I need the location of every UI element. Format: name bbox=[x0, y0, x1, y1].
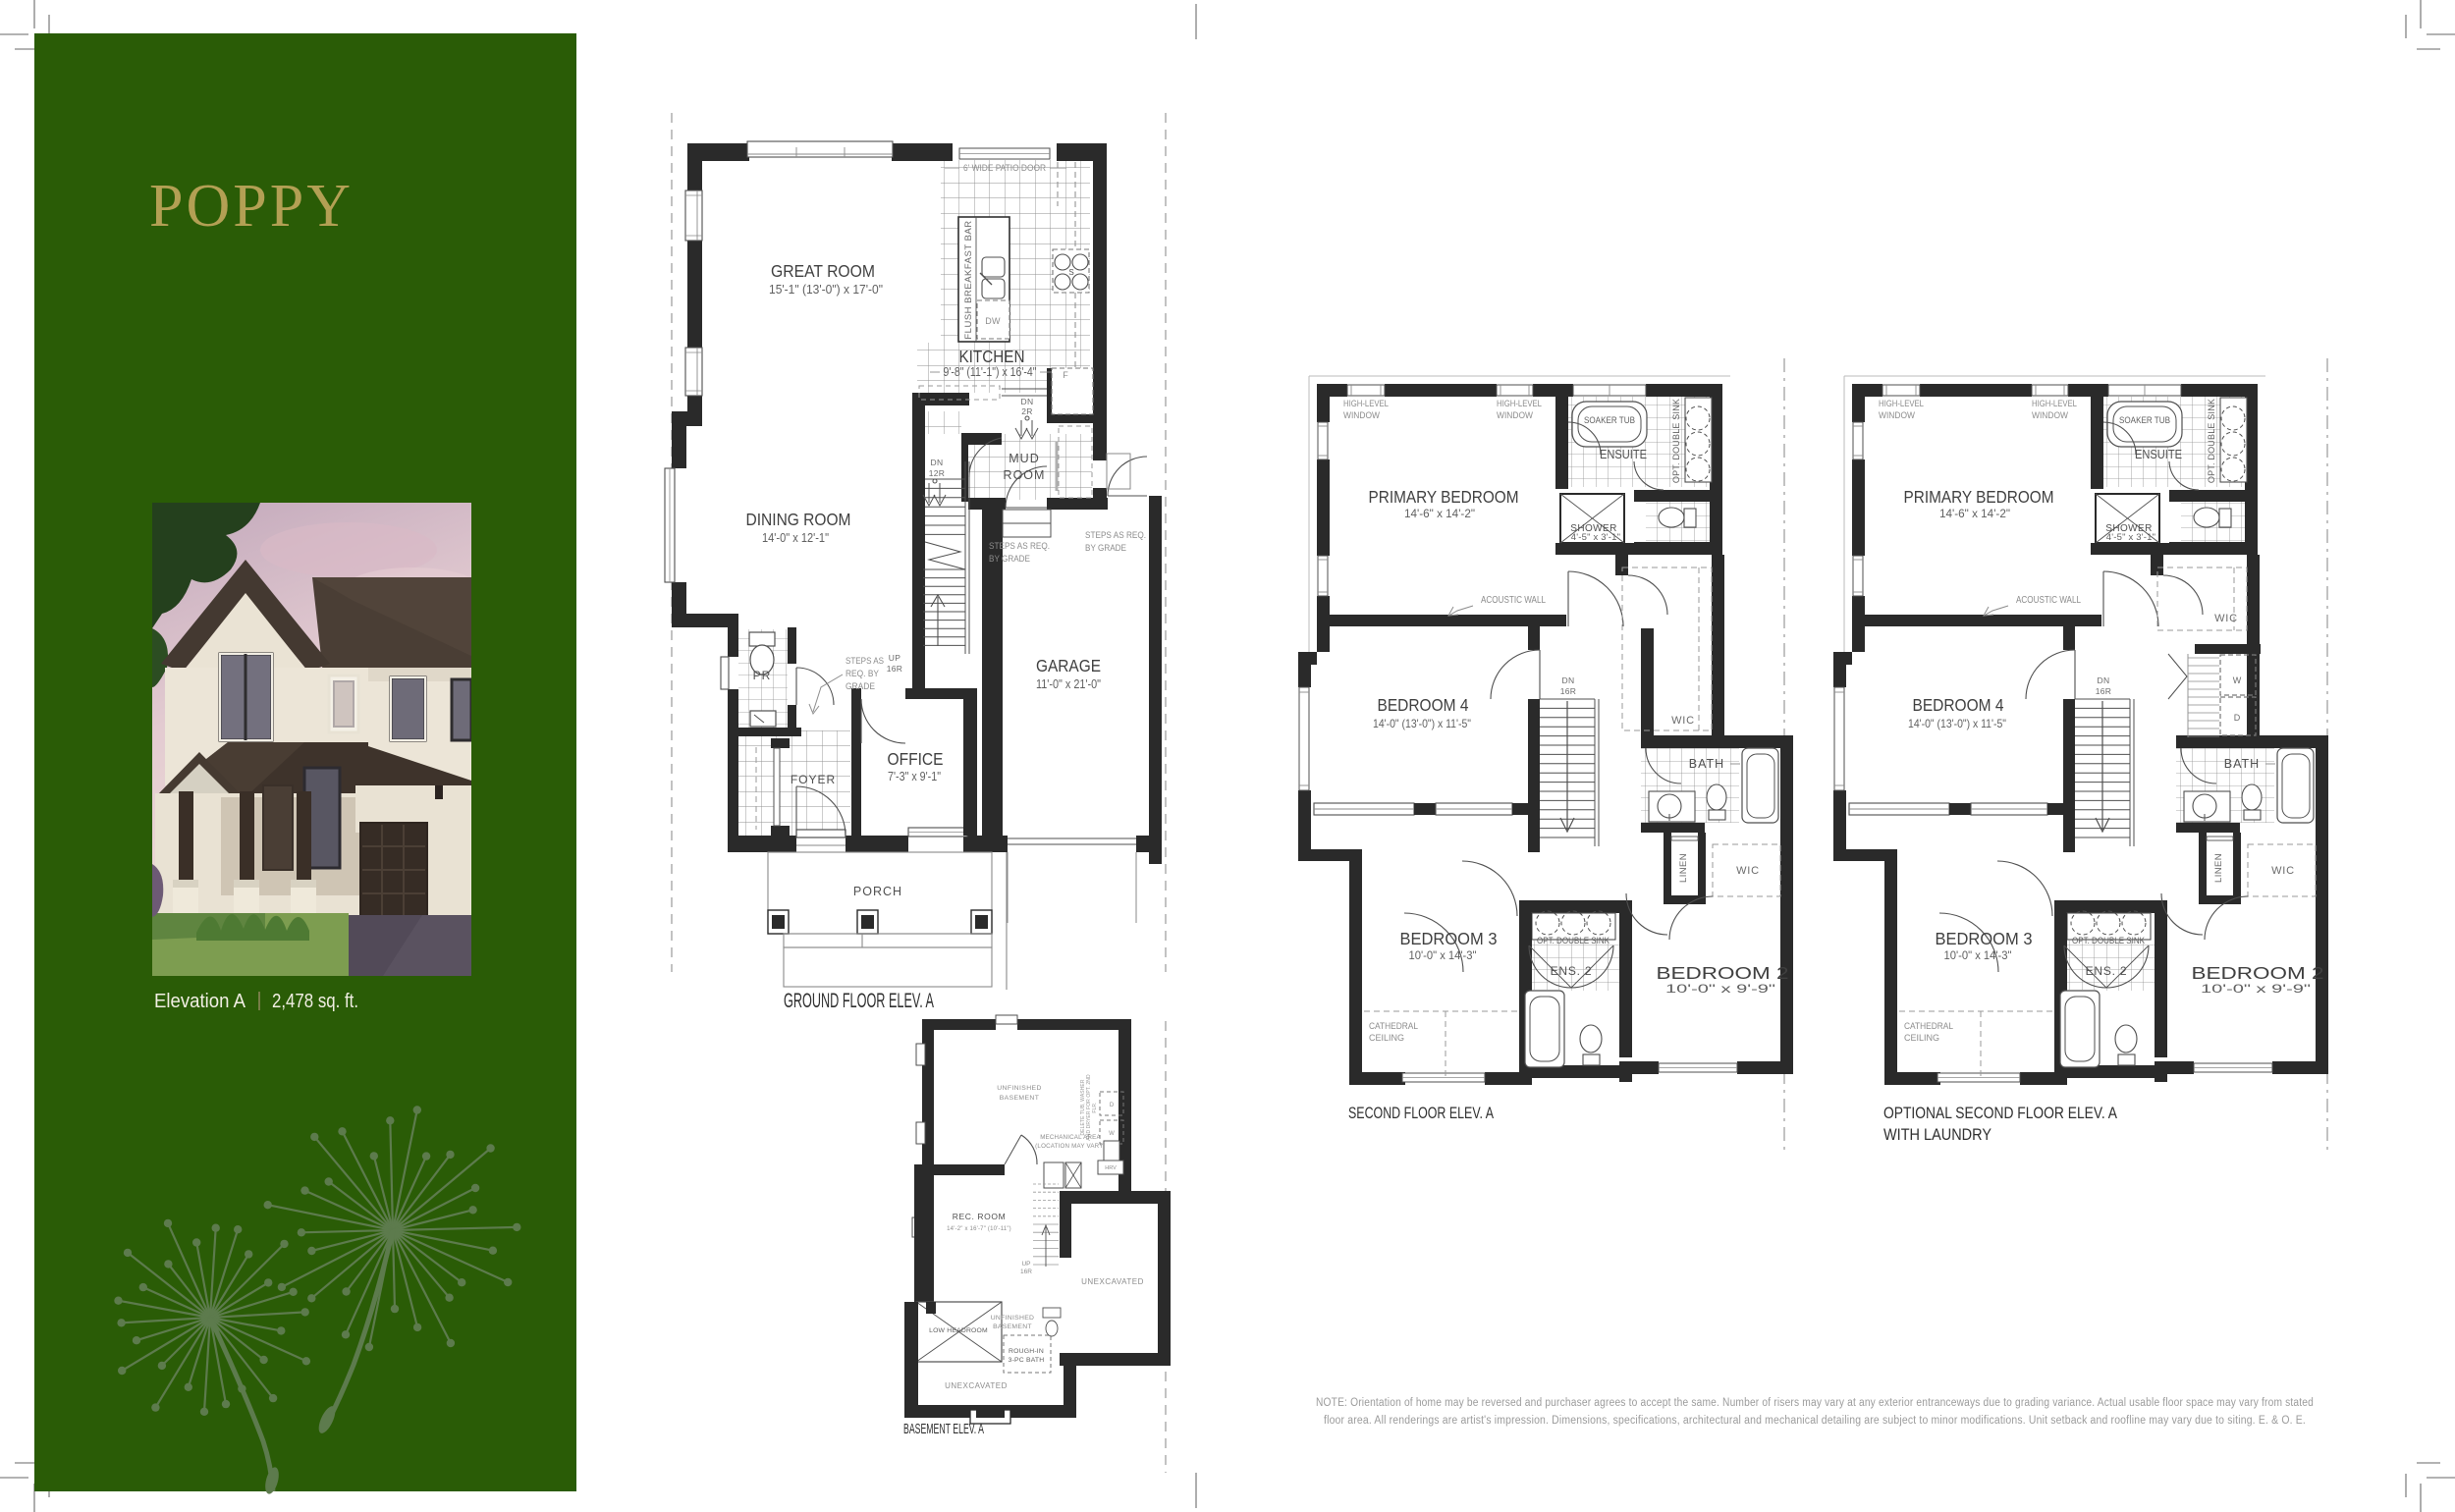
svg-text:BEDROOM 3: BEDROOM 3 bbox=[1400, 929, 1498, 948]
svg-text:MECHANICAL AREA: MECHANICAL AREA bbox=[1040, 1134, 1101, 1141]
svg-text:ACOUSTIC WALL: ACOUSTIC WALL bbox=[2016, 595, 2081, 606]
svg-text:16R: 16R bbox=[1020, 1269, 1032, 1275]
svg-text:HIGH-LEVEL: HIGH-LEVEL bbox=[1497, 399, 1542, 408]
svg-text:WINDOW: WINDOW bbox=[2032, 410, 2068, 420]
svg-text:UNFINISHED: UNFINISHED bbox=[997, 1085, 1042, 1092]
svg-text:ENS. 2: ENS. 2 bbox=[1551, 964, 1593, 978]
svg-text:10'-0" x 9'-9": 10'-0" x 9'-9" bbox=[2201, 982, 2311, 996]
svg-text:F: F bbox=[1063, 370, 1068, 380]
svg-text:ROUGH-IN: ROUGH-IN bbox=[1009, 1348, 1044, 1355]
svg-text:16R: 16R bbox=[1560, 686, 1577, 696]
svg-text:UP: UP bbox=[1021, 1261, 1030, 1268]
svg-text:STEPS AS REQ.: STEPS AS REQ. bbox=[1085, 530, 1146, 541]
svg-text:BEDROOM 2: BEDROOM 2 bbox=[2192, 963, 2324, 983]
svg-text:CEILING: CEILING bbox=[1904, 1033, 1939, 1044]
svg-text:UNEXCAVATED: UNEXCAVATED bbox=[1081, 1277, 1144, 1286]
svg-text:2,478 sq. ft.: 2,478 sq. ft. bbox=[272, 990, 358, 1012]
svg-text:LINEN: LINEN bbox=[2213, 853, 2224, 883]
svg-text:SOAKER TUB: SOAKER TUB bbox=[1584, 415, 1635, 426]
svg-text:BEDROOM 3: BEDROOM 3 bbox=[1936, 929, 2033, 948]
svg-text:FLR.: FLR. bbox=[1092, 1102, 1098, 1112]
svg-text:7'-3" x 9'-1": 7'-3" x 9'-1" bbox=[888, 770, 941, 783]
svg-text:UNFINISHED: UNFINISHED bbox=[991, 1315, 1035, 1322]
svg-text:BEDROOM 4: BEDROOM 4 bbox=[1378, 695, 1469, 715]
svg-text:WINDOW: WINDOW bbox=[1879, 410, 1915, 420]
svg-text:14'-0" (13'-0") x 11'-5": 14'-0" (13'-0") x 11'-5" bbox=[1908, 717, 2006, 730]
svg-text:ENSUITE: ENSUITE bbox=[1600, 447, 1647, 461]
svg-text:6' WIDE PATIO DOOR: 6' WIDE PATIO DOOR bbox=[963, 163, 1046, 173]
svg-text:PR: PR bbox=[753, 669, 772, 682]
svg-text:CATHEDRAL: CATHEDRAL bbox=[1369, 1021, 1418, 1032]
svg-text:LINEN: LINEN bbox=[1678, 853, 1689, 883]
svg-text:14'-6" x 14'-2": 14'-6" x 14'-2" bbox=[1939, 507, 2010, 520]
svg-text:GRADE: GRADE bbox=[846, 681, 875, 692]
svg-text:12R: 12R bbox=[929, 468, 946, 478]
svg-text:CATHEDRAL: CATHEDRAL bbox=[1904, 1021, 1953, 1032]
svg-text:Elevation A: Elevation A bbox=[154, 990, 245, 1012]
svg-text:UP: UP bbox=[889, 653, 900, 663]
svg-text:BEDROOM 4: BEDROOM 4 bbox=[1913, 695, 2004, 715]
svg-text:W: W bbox=[2233, 675, 2242, 685]
svg-text:OPTIONAL SECOND FLOOR ELEV. A: OPTIONAL SECOND FLOOR ELEV. A bbox=[1883, 1105, 2117, 1122]
svg-text:11'-0" x 21'-0": 11'-0" x 21'-0" bbox=[1036, 677, 1101, 691]
svg-text:HIGH-LEVEL: HIGH-LEVEL bbox=[1343, 399, 1389, 408]
svg-text:PRIMARY BEDROOM: PRIMARY BEDROOM bbox=[1369, 487, 1519, 507]
svg-text:D: D bbox=[2234, 713, 2241, 723]
svg-text:BASEMENT: BASEMENT bbox=[993, 1323, 1032, 1330]
svg-text:10'-0" x 9'-9": 10'-0" x 9'-9" bbox=[1665, 982, 1775, 996]
svg-text:S: S bbox=[1068, 268, 1073, 277]
svg-text:GROUND FLOOR ELEV. A: GROUND FLOOR ELEV. A bbox=[784, 990, 934, 1012]
svg-text:HIGH-LEVEL: HIGH-LEVEL bbox=[1879, 399, 1924, 408]
svg-text:SOAKER TUB: SOAKER TUB bbox=[2119, 415, 2170, 426]
svg-text:10'-0" x 14'-3": 10'-0" x 14'-3" bbox=[1409, 948, 1477, 962]
svg-text:WIC: WIC bbox=[2271, 865, 2295, 877]
svg-text:MUD: MUD bbox=[1009, 452, 1039, 465]
svg-text:DINING ROOM: DINING ROOM bbox=[746, 510, 851, 529]
svg-text:BATH: BATH bbox=[2224, 757, 2260, 771]
svg-text:ENSUITE: ENSUITE bbox=[2135, 447, 2182, 461]
svg-text:GARAGE: GARAGE bbox=[1036, 656, 1101, 675]
svg-text:D: D bbox=[1110, 1103, 1115, 1108]
svg-text:14'-6" x 14'-2": 14'-6" x 14'-2" bbox=[1404, 507, 1475, 520]
svg-text:UNEXCAVATED: UNEXCAVATED bbox=[945, 1381, 1008, 1390]
svg-text:BATH: BATH bbox=[1689, 757, 1724, 771]
svg-text:POPPY: POPPY bbox=[149, 173, 354, 240]
svg-text:WITH LAUNDRY: WITH LAUNDRY bbox=[1883, 1126, 1991, 1144]
svg-text:PORCH: PORCH bbox=[853, 885, 902, 898]
svg-text:(LOCATION MAY VARY): (LOCATION MAY VARY) bbox=[1035, 1143, 1106, 1150]
svg-text:BY GRADE: BY GRADE bbox=[1085, 543, 1126, 554]
svg-text:NOTE: Orientation of home may: NOTE: Orientation of home may be reverse… bbox=[1316, 1397, 2314, 1409]
svg-text:GREAT ROOM: GREAT ROOM bbox=[771, 261, 875, 281]
svg-text:WIC: WIC bbox=[1736, 865, 1760, 877]
svg-text:STEPS AS REQ.: STEPS AS REQ. bbox=[989, 541, 1050, 552]
svg-text:HRV: HRV bbox=[1105, 1165, 1117, 1171]
svg-text:WIC: WIC bbox=[2214, 613, 2238, 624]
svg-text:14'-2" x 16'-7" (10'-11"): 14'-2" x 16'-7" (10'-11") bbox=[947, 1226, 1011, 1232]
svg-text:4'-5" x 3'-1": 4'-5" x 3'-1" bbox=[1571, 532, 1620, 543]
svg-text:REC. ROOM: REC. ROOM bbox=[953, 1212, 1007, 1221]
svg-text:KITCHEN: KITCHEN bbox=[959, 347, 1025, 366]
svg-text:BEDROOM 2: BEDROOM 2 bbox=[1657, 963, 1789, 983]
svg-text:15'-1" (13'-0") x 17'-0": 15'-1" (13'-0") x 17'-0" bbox=[769, 283, 883, 297]
svg-text:WINDOW: WINDOW bbox=[1343, 410, 1380, 420]
svg-text:ACOUSTIC WALL: ACOUSTIC WALL bbox=[1481, 595, 1546, 606]
svg-text:FOYER: FOYER bbox=[791, 773, 836, 786]
svg-text:16R: 16R bbox=[2096, 686, 2112, 696]
svg-text:OFFICE: OFFICE bbox=[888, 749, 944, 769]
svg-text:DN: DN bbox=[2098, 675, 2110, 685]
svg-text:4'-5" x 3'-1": 4'-5" x 3'-1" bbox=[2106, 532, 2155, 543]
svg-text:10'-0" x 14'-3": 10'-0" x 14'-3" bbox=[1944, 948, 2012, 962]
svg-text:floor area. All renderings are: floor area. All renderings are artist's … bbox=[1324, 1415, 2306, 1427]
svg-text:14'-0" x 12'-1": 14'-0" x 12'-1" bbox=[762, 531, 829, 545]
svg-text:LOW HEADROOM: LOW HEADROOM bbox=[929, 1327, 988, 1334]
svg-text:SECOND FLOOR ELEV. A: SECOND FLOOR ELEV. A bbox=[1348, 1105, 1494, 1122]
svg-text:CEILING: CEILING bbox=[1369, 1033, 1404, 1044]
svg-text:STEPS AS: STEPS AS bbox=[846, 656, 884, 667]
svg-text:W: W bbox=[1109, 1131, 1115, 1137]
svg-text:HIGH-LEVEL: HIGH-LEVEL bbox=[2032, 399, 2077, 408]
svg-text:ROOM: ROOM bbox=[1004, 468, 1046, 482]
svg-text:DN: DN bbox=[1021, 397, 1034, 406]
svg-text:BY GRADE: BY GRADE bbox=[989, 554, 1030, 565]
svg-text:9'-8" (11'-1") x 16'-4": 9'-8" (11'-1") x 16'-4" bbox=[944, 365, 1037, 379]
svg-text:OPT. DOUBLE SINK: OPT. DOUBLE SINK bbox=[1671, 399, 1681, 483]
svg-text:ENS. 2: ENS. 2 bbox=[2086, 964, 2128, 978]
svg-text:FLUSH BREAKFAST BAR: FLUSH BREAKFAST BAR bbox=[963, 220, 974, 339]
svg-text:16R: 16R bbox=[887, 664, 903, 674]
svg-text:PRIMARY BEDROOM: PRIMARY BEDROOM bbox=[1904, 487, 2054, 507]
svg-text:14'-0" (13'-0") x 11'-5": 14'-0" (13'-0") x 11'-5" bbox=[1373, 717, 1471, 730]
svg-text:BASEMENT ELEV. A: BASEMENT ELEV. A bbox=[903, 1421, 984, 1437]
svg-text:DN: DN bbox=[931, 458, 944, 467]
svg-text:DN: DN bbox=[1562, 675, 1575, 685]
svg-text:OPT. DOUBLE SINK: OPT. DOUBLE SINK bbox=[2207, 399, 2216, 483]
svg-text:2R: 2R bbox=[1021, 406, 1032, 416]
svg-text:DW: DW bbox=[985, 316, 1001, 326]
svg-text:WINDOW: WINDOW bbox=[1497, 410, 1533, 420]
svg-text:WIC: WIC bbox=[1671, 715, 1695, 727]
svg-text:3-PC BATH: 3-PC BATH bbox=[1009, 1357, 1045, 1364]
svg-text:REQ. BY: REQ. BY bbox=[846, 669, 880, 679]
svg-text:BASEMENT: BASEMENT bbox=[1000, 1095, 1040, 1102]
